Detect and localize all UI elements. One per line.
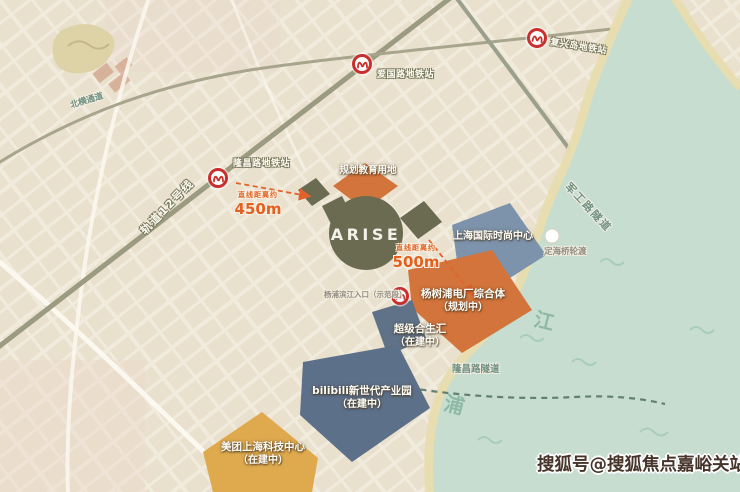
poi-bilibili-status: （在建中） <box>300 398 424 412</box>
poi-bilibili-name: bilibili新世代产业园 <box>312 385 412 397</box>
poi-hopson-status: （在建中） <box>378 336 462 350</box>
metro-logo-icon <box>208 168 228 188</box>
ferry-dot <box>545 229 559 243</box>
poi-meituan-name: 美团上海科技中心 <box>221 441 305 453</box>
poi-hopson-label: 超级合生汇 （在建中） <box>378 322 462 350</box>
poi-meituan-label: 美团上海科技中心 （在建中） <box>206 440 320 468</box>
distance-450m-value: 450m <box>222 199 294 219</box>
site-arise-label: ARISE <box>326 224 406 246</box>
station-label-aiguo: 爱国路地铁站 <box>377 69 434 81</box>
poi-hopson-name: 超级合生汇 <box>394 323 447 335</box>
station-label-longchang: 隆昌路地铁站 <box>233 158 290 170</box>
poi-power-plant-name: 杨树浦电厂综合体 <box>421 288 505 300</box>
distance-450m: 直线距离约 450m <box>222 191 294 220</box>
poi-power-plant-label: 杨树浦电厂综合体 （规划中） <box>408 287 518 315</box>
map: 隆昌路地铁站 爱国路地铁站 复兴岛地铁站 轨道12号线 北横通道 军工路隧道 隆… <box>0 0 740 492</box>
poi-fashion-center-label: 上海国际时尚中心 <box>448 230 538 244</box>
distance-500m: 直线距离约 500m <box>380 244 452 273</box>
poi-power-plant-status: （规划中） <box>408 301 518 315</box>
watermark: 搜狐号@搜狐焦点嘉峪关站 <box>537 454 740 478</box>
metro-logo-icon <box>352 54 372 74</box>
poi-meituan-status: （在建中） <box>206 454 320 468</box>
map-graphics <box>0 0 740 492</box>
road-label-longchang-tunnel: 隆昌路隧道 <box>452 364 500 377</box>
poi-education-label: 规划教育用地 <box>320 165 416 178</box>
riverside-entry-label: 杨浦滨江入口（示范段） <box>324 290 407 300</box>
poi-bilibili-label: bilibili新世代产业园 （在建中） <box>300 384 424 412</box>
ferry-label: 定海桥轮渡 <box>544 247 587 258</box>
distance-500m-value: 500m <box>380 252 452 272</box>
